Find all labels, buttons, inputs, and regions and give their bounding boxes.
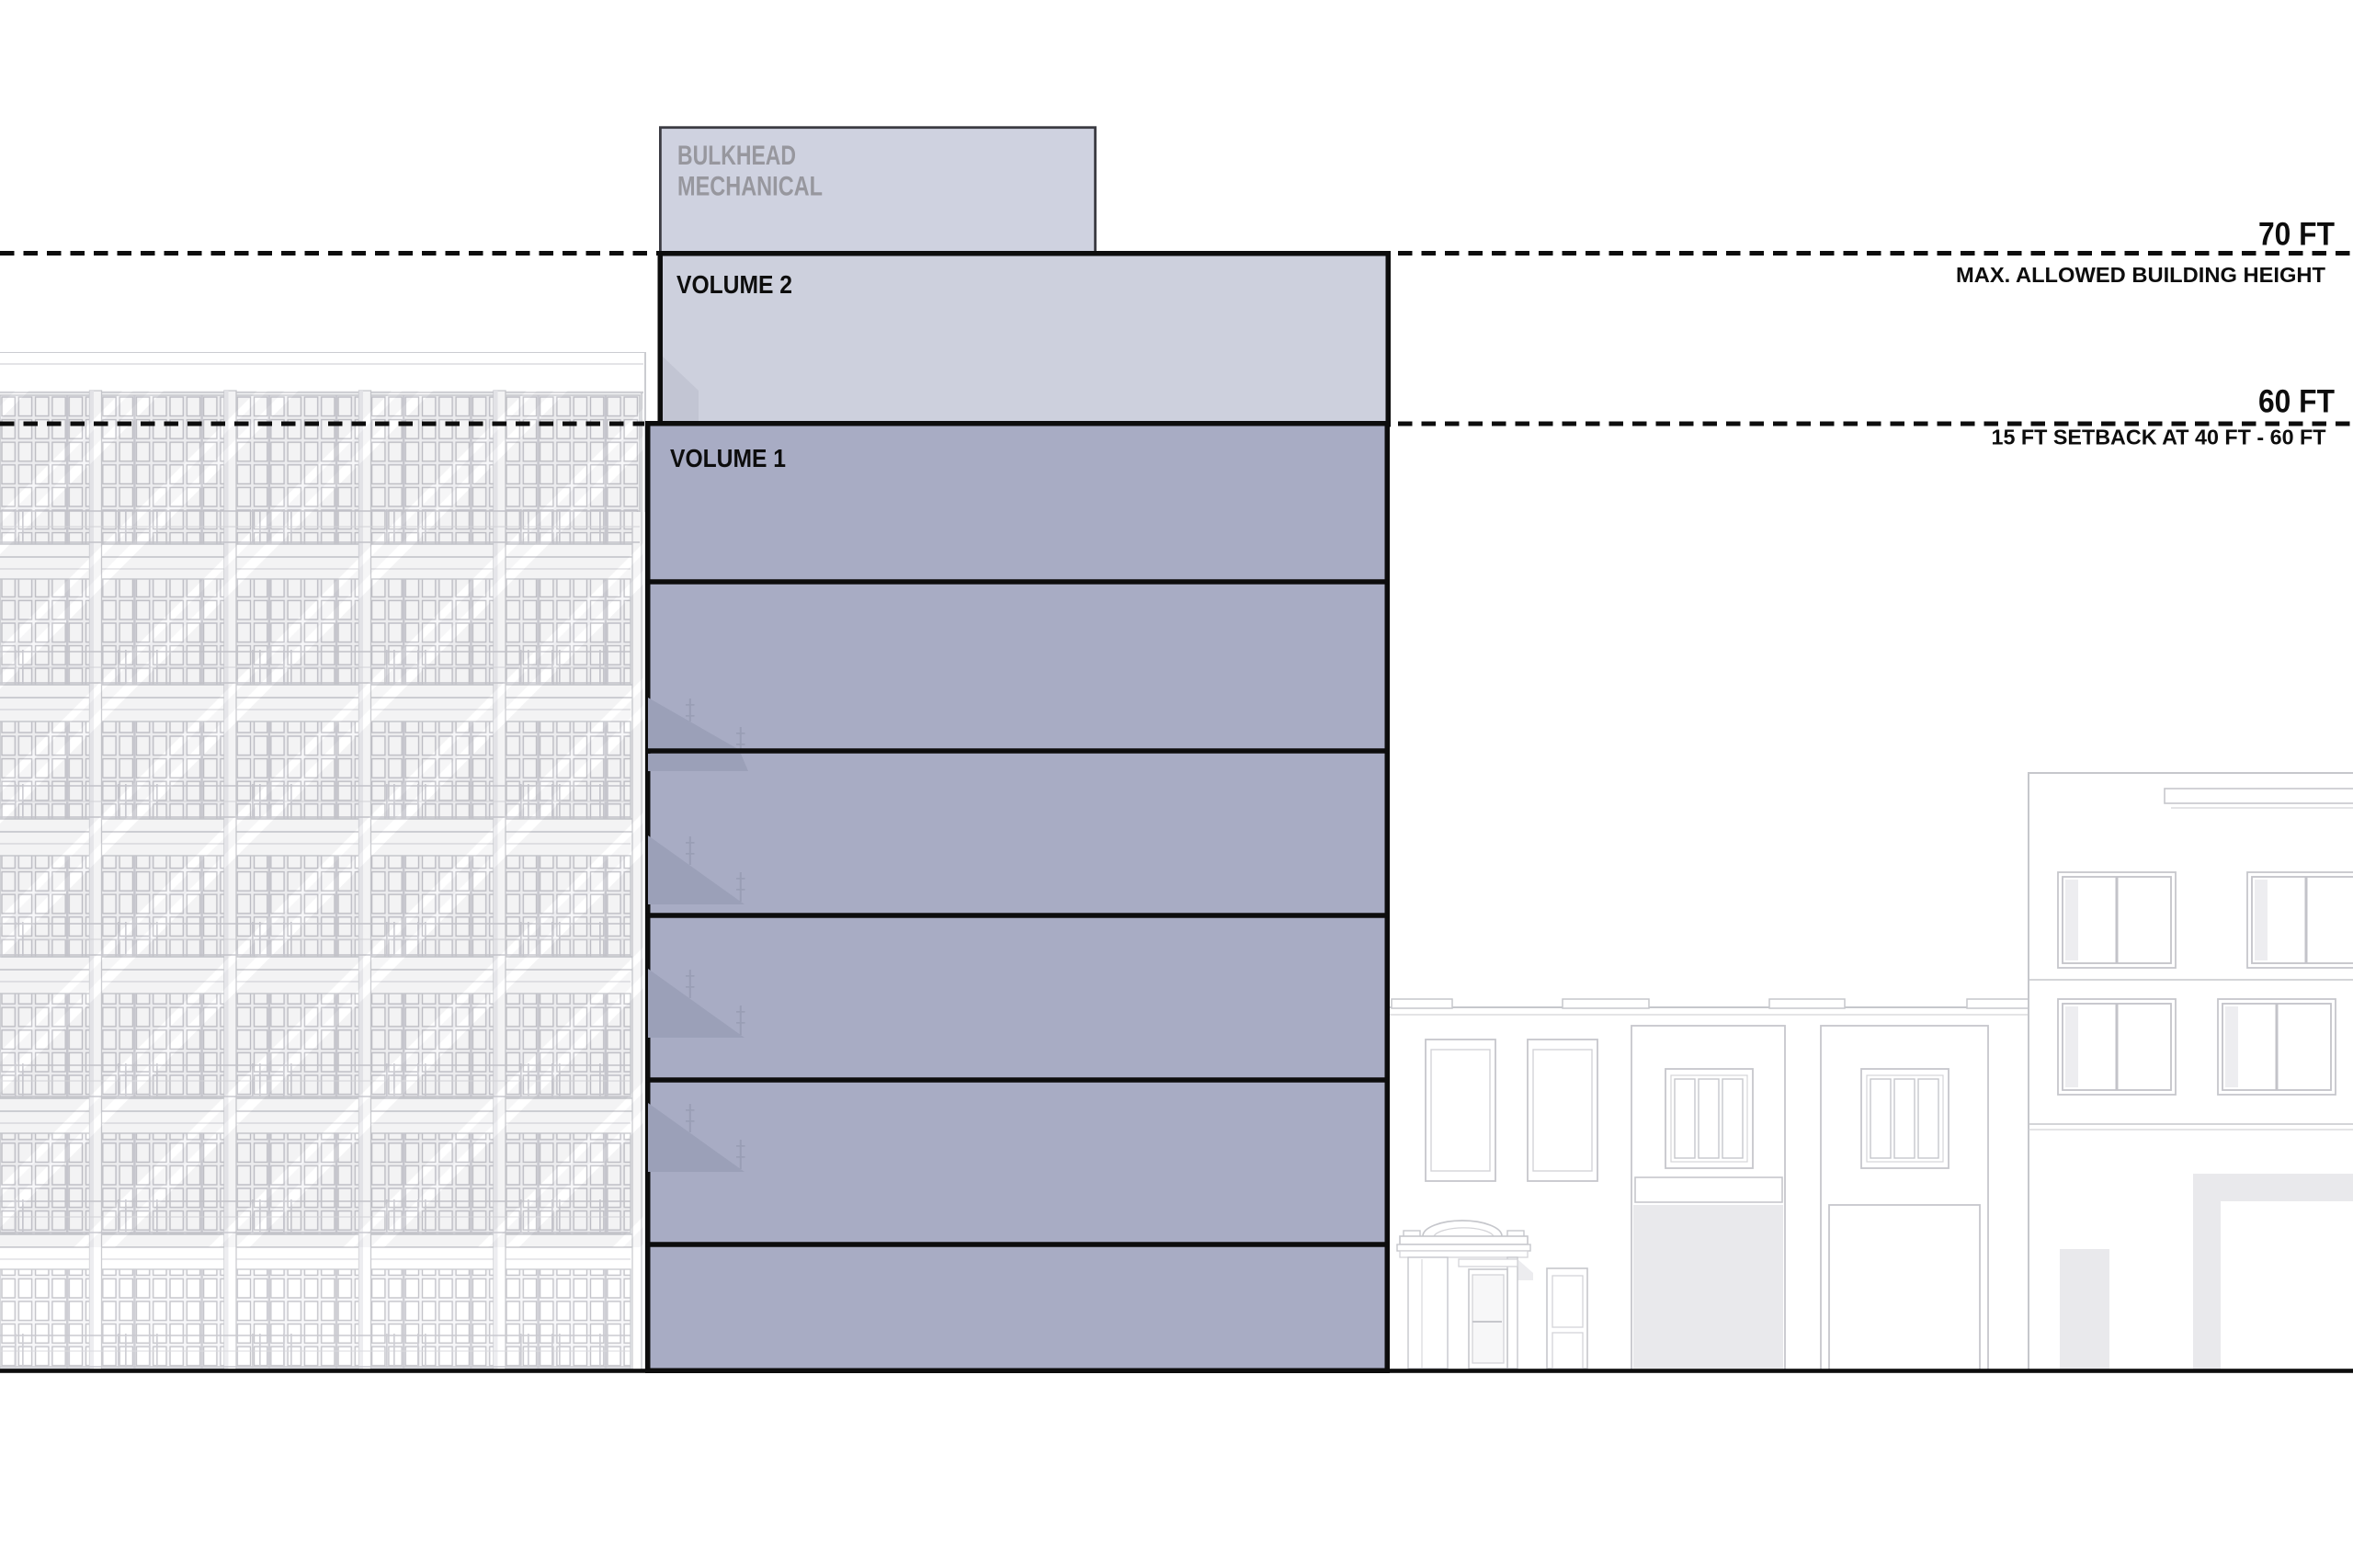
svg-text:MAX. ALLOWED BUILDING HEIGHT: MAX. ALLOWED BUILDING HEIGHT [1956, 263, 2326, 287]
svg-text:BULKHEAD: BULKHEAD [677, 141, 796, 171]
svg-text:60 FT: 60 FT [2258, 384, 2335, 420]
svg-text:VOLUME 1: VOLUME 1 [670, 444, 786, 472]
svg-text:70 FT: 70 FT [2258, 217, 2335, 253]
svg-text:15 FT SETBACK AT 40 FT - 60 FT: 15 FT SETBACK AT 40 FT - 60 FT [1992, 426, 2327, 449]
svg-text:VOLUME 2: VOLUME 2 [676, 270, 792, 299]
svg-text:MECHANICAL: MECHANICAL [677, 172, 823, 202]
